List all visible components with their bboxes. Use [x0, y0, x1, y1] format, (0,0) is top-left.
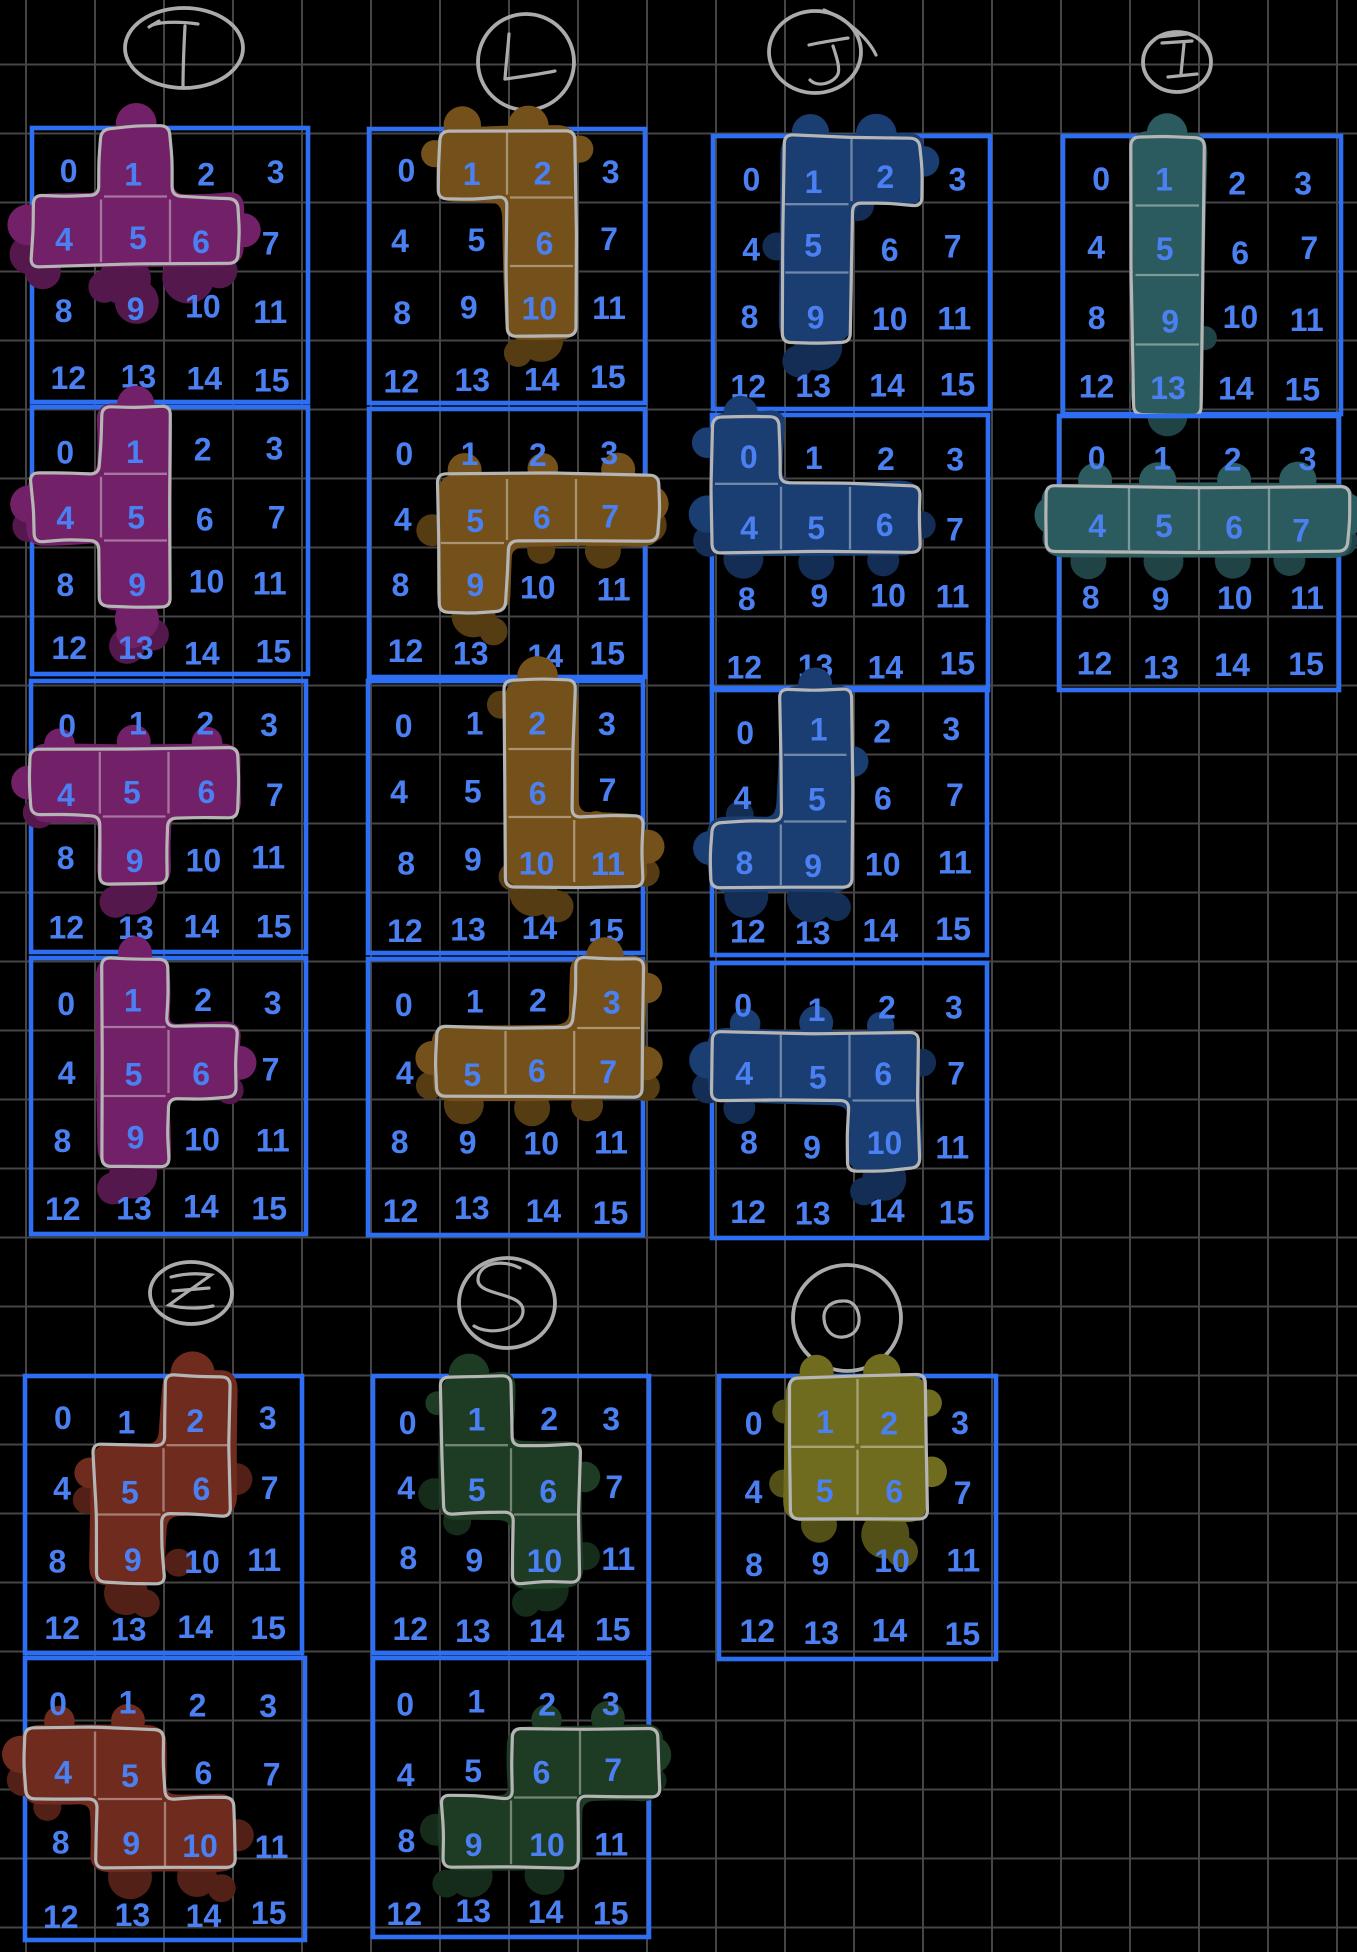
svg-text:3: 3 — [1299, 441, 1317, 477]
svg-text:12: 12 — [387, 913, 423, 949]
svg-text:5: 5 — [129, 220, 147, 256]
svg-text:11: 11 — [253, 566, 287, 602]
svg-text:2: 2 — [189, 1688, 207, 1724]
svg-text:0: 0 — [54, 1400, 72, 1436]
svg-text:6: 6 — [533, 1755, 551, 1791]
svg-text:7: 7 — [263, 1756, 281, 1792]
svg-text:3: 3 — [1294, 166, 1312, 202]
svg-text:12: 12 — [386, 1896, 422, 1932]
svg-text:6: 6 — [193, 1471, 211, 1507]
svg-text:0: 0 — [396, 1686, 414, 1722]
svg-text:13: 13 — [795, 368, 831, 404]
svg-text:10: 10 — [1217, 580, 1253, 616]
svg-text:2: 2 — [529, 983, 547, 1019]
svg-text:6: 6 — [885, 1473, 903, 1509]
svg-text:6: 6 — [1225, 510, 1243, 546]
svg-text:9: 9 — [127, 291, 145, 327]
svg-text:0: 0 — [740, 439, 758, 475]
svg-text:11: 11 — [256, 1123, 290, 1159]
svg-text:3: 3 — [259, 1688, 277, 1724]
svg-text:6: 6 — [198, 774, 216, 810]
svg-text:3: 3 — [603, 984, 621, 1020]
svg-text:10: 10 — [189, 563, 225, 599]
svg-text:15: 15 — [254, 362, 290, 398]
svg-text:4: 4 — [735, 1056, 753, 1092]
svg-text:13: 13 — [116, 1190, 152, 1226]
svg-text:8: 8 — [741, 299, 759, 335]
svg-text:15: 15 — [590, 635, 626, 671]
svg-text:10: 10 — [1223, 299, 1259, 335]
svg-text:11: 11 — [253, 294, 287, 330]
svg-text:15: 15 — [945, 1616, 981, 1652]
svg-text:10: 10 — [867, 1125, 903, 1161]
svg-text:4: 4 — [745, 1474, 763, 1510]
svg-text:3: 3 — [260, 707, 278, 743]
svg-text:14: 14 — [184, 635, 220, 671]
svg-text:9: 9 — [803, 1130, 821, 1166]
svg-text:5: 5 — [804, 228, 822, 264]
svg-text:0: 0 — [60, 153, 78, 189]
svg-text:5: 5 — [1155, 508, 1173, 544]
svg-text:1: 1 — [468, 1402, 486, 1438]
svg-text:7: 7 — [600, 221, 618, 257]
svg-text:4: 4 — [56, 500, 74, 536]
svg-text:3: 3 — [946, 442, 964, 478]
svg-text:4: 4 — [54, 1755, 72, 1791]
svg-text:5: 5 — [1156, 231, 1174, 267]
svg-text:13: 13 — [111, 1611, 147, 1647]
svg-text:11: 11 — [601, 1541, 635, 1577]
svg-text:8: 8 — [398, 1823, 416, 1859]
svg-text:6: 6 — [192, 1056, 210, 1092]
svg-text:4: 4 — [734, 780, 752, 816]
svg-text:0: 0 — [395, 436, 413, 472]
svg-text:13: 13 — [118, 630, 154, 666]
svg-text:8: 8 — [393, 295, 411, 331]
svg-text:4: 4 — [55, 222, 73, 258]
svg-text:13: 13 — [1143, 649, 1179, 685]
svg-text:5: 5 — [816, 1473, 834, 1509]
svg-text:5: 5 — [121, 1758, 139, 1794]
svg-text:7: 7 — [946, 777, 964, 813]
svg-text:1: 1 — [466, 706, 484, 742]
svg-text:3: 3 — [602, 154, 620, 190]
svg-text:11: 11 — [594, 1125, 628, 1161]
svg-text:0: 0 — [743, 161, 761, 197]
svg-text:7: 7 — [944, 229, 962, 265]
svg-text:12: 12 — [49, 909, 85, 945]
svg-text:8: 8 — [740, 1124, 758, 1160]
svg-text:15: 15 — [256, 634, 292, 670]
svg-text:9: 9 — [465, 1827, 483, 1863]
svg-text:11: 11 — [936, 578, 970, 614]
svg-text:2: 2 — [534, 156, 552, 192]
svg-text:13: 13 — [804, 1615, 840, 1651]
svg-text:0: 0 — [395, 708, 413, 744]
svg-text:8: 8 — [57, 840, 75, 876]
svg-text:9: 9 — [1152, 581, 1170, 617]
svg-text:11: 11 — [1290, 580, 1324, 616]
svg-text:5: 5 — [468, 222, 486, 258]
svg-text:5: 5 — [121, 1474, 139, 1510]
svg-text:3: 3 — [945, 990, 963, 1026]
svg-text:1: 1 — [461, 436, 479, 472]
svg-text:9: 9 — [126, 843, 144, 879]
svg-text:10: 10 — [186, 843, 222, 879]
svg-text:1: 1 — [1153, 440, 1171, 476]
svg-text:7: 7 — [605, 1469, 623, 1505]
svg-text:13: 13 — [455, 362, 491, 398]
svg-text:7: 7 — [604, 1752, 622, 1788]
svg-text:7: 7 — [947, 1056, 965, 1092]
svg-text:14: 14 — [1218, 371, 1254, 407]
svg-text:15: 15 — [1288, 646, 1324, 682]
svg-text:8: 8 — [1082, 579, 1100, 615]
svg-text:7: 7 — [1300, 230, 1318, 266]
svg-text:2: 2 — [1224, 442, 1242, 478]
svg-text:3: 3 — [264, 985, 282, 1021]
svg-text:3: 3 — [267, 154, 285, 190]
svg-text:9: 9 — [812, 1546, 830, 1582]
svg-text:2: 2 — [197, 156, 215, 192]
svg-text:7: 7 — [599, 1054, 617, 1090]
svg-text:3: 3 — [602, 1686, 620, 1722]
svg-text:14: 14 — [183, 1189, 219, 1225]
svg-text:2: 2 — [877, 441, 895, 477]
svg-text:10: 10 — [519, 846, 555, 882]
svg-text:9: 9 — [465, 1543, 483, 1579]
svg-text:11: 11 — [946, 1543, 980, 1579]
svg-text:7: 7 — [262, 225, 280, 261]
svg-text:10: 10 — [520, 570, 556, 606]
svg-text:1: 1 — [805, 164, 823, 200]
svg-text:7: 7 — [1292, 512, 1310, 548]
svg-text:2: 2 — [196, 705, 214, 741]
svg-text:6: 6 — [539, 1474, 557, 1510]
svg-text:2: 2 — [873, 714, 891, 750]
svg-text:1: 1 — [816, 1404, 834, 1440]
svg-text:12: 12 — [383, 1193, 419, 1229]
svg-text:6: 6 — [196, 501, 214, 537]
svg-text:7: 7 — [946, 512, 964, 548]
svg-text:11: 11 — [937, 300, 971, 336]
svg-text:1: 1 — [1155, 161, 1173, 197]
svg-text:15: 15 — [935, 911, 971, 947]
svg-text:5: 5 — [466, 503, 484, 539]
svg-text:8: 8 — [745, 1547, 763, 1583]
svg-text:5: 5 — [123, 774, 141, 810]
svg-text:2: 2 — [878, 990, 896, 1026]
svg-text:2: 2 — [529, 437, 547, 473]
svg-text:2: 2 — [540, 1401, 558, 1437]
svg-text:12: 12 — [51, 360, 87, 396]
svg-text:10: 10 — [184, 1544, 220, 1580]
svg-text:4: 4 — [58, 1055, 76, 1091]
svg-text:1: 1 — [118, 1404, 136, 1440]
svg-text:2: 2 — [186, 1403, 204, 1439]
svg-text:1: 1 — [467, 1684, 485, 1720]
svg-text:2: 2 — [194, 432, 212, 468]
svg-text:10: 10 — [874, 1543, 910, 1579]
svg-text:11: 11 — [1290, 302, 1324, 338]
svg-text:14: 14 — [1214, 647, 1250, 683]
svg-text:6: 6 — [528, 1053, 546, 1089]
svg-text:10: 10 — [184, 1121, 220, 1157]
svg-text:5: 5 — [807, 510, 825, 546]
svg-text:9: 9 — [464, 842, 482, 878]
svg-text:0: 0 — [1092, 161, 1110, 197]
svg-text:9: 9 — [807, 300, 825, 336]
svg-text:0: 0 — [745, 1405, 763, 1441]
svg-text:4: 4 — [1087, 230, 1105, 266]
svg-text:14: 14 — [869, 367, 905, 403]
svg-text:13: 13 — [795, 1196, 831, 1232]
svg-text:11: 11 — [251, 840, 285, 876]
svg-text:11: 11 — [591, 846, 625, 882]
svg-text:8: 8 — [392, 567, 410, 603]
svg-text:13: 13 — [455, 1613, 491, 1649]
svg-text:15: 15 — [940, 366, 976, 402]
svg-text:9: 9 — [460, 289, 478, 325]
svg-text:4: 4 — [1088, 508, 1106, 544]
svg-text:14: 14 — [186, 1898, 222, 1934]
svg-text:9: 9 — [810, 578, 828, 614]
svg-text:12: 12 — [1077, 645, 1113, 681]
svg-text:15: 15 — [593, 1195, 629, 1231]
svg-text:3: 3 — [951, 1405, 969, 1441]
svg-text:14: 14 — [184, 908, 220, 944]
svg-text:0: 0 — [1088, 440, 1106, 476]
svg-text:1: 1 — [810, 711, 828, 747]
svg-text:11: 11 — [594, 1827, 628, 1863]
svg-text:5: 5 — [808, 781, 826, 817]
svg-text:4: 4 — [57, 777, 75, 813]
svg-text:14: 14 — [863, 913, 899, 949]
svg-text:7: 7 — [954, 1475, 972, 1511]
svg-text:14: 14 — [522, 910, 558, 946]
svg-text:1: 1 — [126, 434, 144, 470]
svg-text:8: 8 — [736, 845, 754, 881]
svg-text:3: 3 — [598, 706, 616, 742]
svg-text:12: 12 — [384, 363, 420, 399]
svg-text:9: 9 — [124, 1542, 142, 1578]
svg-text:6: 6 — [1231, 235, 1249, 271]
svg-text:11: 11 — [247, 1542, 281, 1578]
svg-text:7: 7 — [262, 1051, 280, 1087]
svg-text:4: 4 — [53, 1470, 71, 1506]
svg-text:0: 0 — [49, 1686, 67, 1722]
svg-text:14: 14 — [529, 1613, 565, 1649]
svg-text:15: 15 — [595, 1611, 631, 1647]
svg-text:8: 8 — [738, 581, 756, 617]
svg-text:11: 11 — [938, 845, 972, 881]
svg-text:12: 12 — [44, 1610, 80, 1646]
svg-text:14: 14 — [872, 1613, 908, 1649]
svg-text:6: 6 — [533, 499, 551, 535]
svg-text:6: 6 — [881, 232, 899, 268]
svg-text:10: 10 — [185, 289, 221, 325]
svg-text:4: 4 — [397, 1470, 415, 1506]
svg-text:10: 10 — [182, 1828, 218, 1864]
svg-text:6: 6 — [876, 507, 894, 543]
svg-text:1: 1 — [805, 440, 823, 476]
svg-text:9: 9 — [128, 567, 146, 603]
svg-text:1: 1 — [466, 983, 484, 1019]
svg-text:3: 3 — [266, 430, 284, 466]
svg-text:5: 5 — [125, 1057, 143, 1093]
svg-text:10: 10 — [524, 1126, 560, 1162]
svg-text:4: 4 — [394, 502, 412, 538]
svg-text:1: 1 — [124, 157, 142, 193]
svg-text:5: 5 — [809, 1060, 827, 1096]
svg-text:13: 13 — [456, 1893, 492, 1929]
svg-text:15: 15 — [250, 1610, 286, 1646]
svg-text:12: 12 — [740, 1613, 776, 1649]
svg-text:13: 13 — [1150, 370, 1186, 406]
svg-text:12: 12 — [730, 914, 766, 950]
svg-text:8: 8 — [52, 1824, 70, 1860]
svg-text:15: 15 — [1285, 372, 1321, 408]
svg-text:3: 3 — [602, 1401, 620, 1437]
svg-text:6: 6 — [874, 780, 892, 816]
svg-text:0: 0 — [57, 986, 75, 1022]
svg-text:1: 1 — [124, 983, 142, 1019]
svg-text:0: 0 — [736, 715, 754, 751]
svg-text:10: 10 — [527, 1543, 563, 1579]
svg-text:4: 4 — [396, 1055, 414, 1091]
svg-text:6: 6 — [195, 1755, 213, 1791]
svg-text:12: 12 — [45, 1191, 81, 1227]
svg-text:8: 8 — [54, 1123, 72, 1159]
svg-text:8: 8 — [1088, 300, 1106, 336]
svg-text:2: 2 — [1228, 166, 1246, 202]
svg-text:10: 10 — [522, 291, 558, 327]
svg-text:13: 13 — [450, 911, 486, 947]
svg-text:0: 0 — [395, 987, 413, 1023]
svg-text:6: 6 — [874, 1056, 892, 1092]
svg-text:8: 8 — [397, 845, 415, 881]
svg-text:15: 15 — [256, 909, 292, 945]
svg-text:14: 14 — [526, 1193, 562, 1229]
svg-text:14: 14 — [177, 1609, 213, 1645]
svg-text:4: 4 — [390, 774, 408, 810]
svg-text:0: 0 — [58, 708, 76, 744]
svg-text:13: 13 — [115, 1897, 151, 1933]
svg-text:7: 7 — [599, 772, 617, 808]
svg-text:7: 7 — [268, 499, 286, 535]
svg-text:11: 11 — [592, 290, 626, 326]
svg-text:6: 6 — [536, 225, 554, 261]
svg-text:5: 5 — [468, 1472, 486, 1508]
svg-text:0: 0 — [56, 435, 74, 471]
svg-text:12: 12 — [727, 649, 763, 685]
svg-text:12: 12 — [388, 633, 424, 669]
svg-text:14: 14 — [869, 1193, 905, 1229]
svg-text:9: 9 — [122, 1826, 140, 1862]
svg-text:12: 12 — [730, 1194, 766, 1230]
svg-text:4: 4 — [742, 232, 760, 268]
svg-text:7: 7 — [601, 499, 619, 535]
svg-text:9: 9 — [466, 567, 484, 603]
svg-text:2: 2 — [538, 1687, 556, 1723]
svg-text:4: 4 — [391, 223, 409, 259]
svg-text:5: 5 — [464, 774, 482, 810]
svg-text:1: 1 — [129, 706, 147, 742]
svg-text:9: 9 — [1161, 304, 1179, 340]
svg-text:5: 5 — [464, 1753, 482, 1789]
svg-text:9: 9 — [127, 1120, 145, 1156]
svg-text:11: 11 — [935, 1129, 969, 1165]
svg-text:14: 14 — [524, 361, 560, 397]
svg-text:3: 3 — [600, 435, 618, 471]
svg-text:2: 2 — [880, 1405, 898, 1441]
svg-text:4: 4 — [397, 1757, 415, 1793]
svg-text:8: 8 — [49, 1544, 67, 1580]
svg-text:8: 8 — [55, 293, 73, 329]
svg-text:1: 1 — [808, 992, 826, 1028]
svg-text:13: 13 — [453, 635, 489, 671]
svg-text:15: 15 — [940, 645, 976, 681]
svg-text:15: 15 — [251, 1190, 287, 1226]
svg-text:2: 2 — [528, 706, 546, 742]
svg-text:6: 6 — [529, 776, 547, 812]
svg-text:7: 7 — [261, 1470, 279, 1506]
svg-text:5: 5 — [463, 1057, 481, 1093]
svg-text:8: 8 — [399, 1540, 417, 1576]
svg-text:0: 0 — [399, 1405, 417, 1441]
svg-text:9: 9 — [804, 848, 822, 884]
svg-text:10: 10 — [872, 301, 908, 337]
svg-text:0: 0 — [734, 987, 752, 1023]
svg-text:9: 9 — [459, 1125, 477, 1161]
svg-text:6: 6 — [192, 224, 210, 260]
svg-text:15: 15 — [593, 1895, 629, 1931]
svg-text:10: 10 — [865, 846, 901, 882]
svg-text:2: 2 — [876, 159, 894, 195]
svg-text:10: 10 — [529, 1827, 565, 1863]
svg-text:14: 14 — [187, 361, 223, 397]
svg-text:8: 8 — [56, 567, 74, 603]
svg-text:4: 4 — [740, 510, 758, 546]
svg-text:0: 0 — [398, 153, 416, 189]
svg-text:12: 12 — [43, 1899, 79, 1935]
svg-text:12: 12 — [1079, 369, 1115, 405]
svg-text:2: 2 — [194, 982, 212, 1018]
svg-text:15: 15 — [590, 359, 626, 395]
svg-text:15: 15 — [251, 1895, 287, 1931]
svg-text:11: 11 — [597, 571, 631, 607]
svg-text:13: 13 — [454, 1190, 490, 1226]
svg-text:1: 1 — [463, 156, 481, 192]
svg-text:3: 3 — [259, 1400, 277, 1436]
svg-text:7: 7 — [266, 777, 284, 813]
svg-text:12: 12 — [393, 1611, 429, 1647]
svg-text:3: 3 — [942, 711, 960, 747]
svg-text:12: 12 — [51, 630, 87, 666]
svg-text:15: 15 — [939, 1195, 975, 1231]
svg-text:1: 1 — [119, 1684, 137, 1720]
svg-text:14: 14 — [528, 1894, 564, 1930]
svg-text:8: 8 — [391, 1124, 409, 1160]
svg-text:13: 13 — [795, 915, 831, 951]
svg-text:14: 14 — [868, 650, 904, 686]
svg-text:3: 3 — [949, 162, 967, 198]
svg-text:10: 10 — [870, 577, 906, 613]
svg-text:5: 5 — [127, 500, 145, 536]
svg-text:11: 11 — [255, 1829, 289, 1865]
